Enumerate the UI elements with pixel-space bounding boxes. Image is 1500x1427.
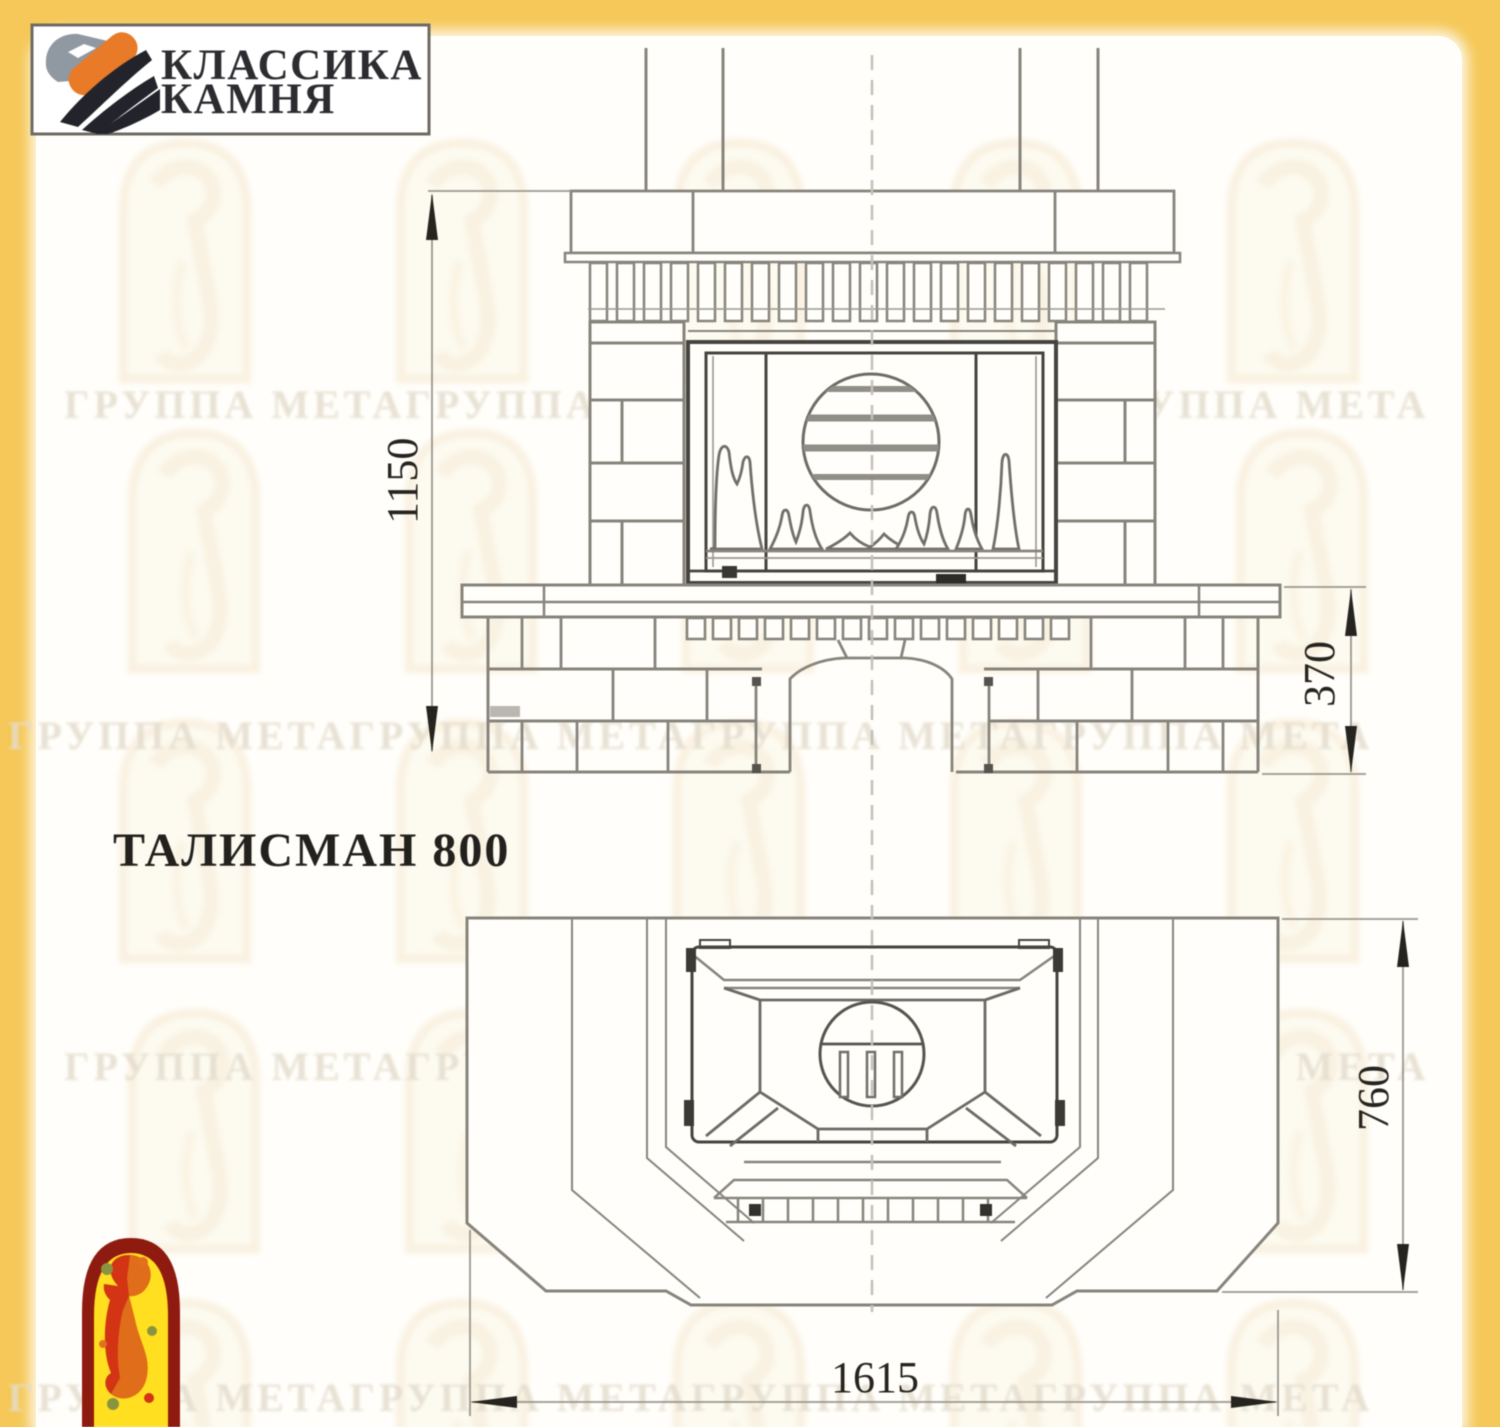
svg-text:1150: 1150	[378, 438, 427, 524]
svg-text:370: 370	[1295, 641, 1344, 707]
svg-text:1615: 1615	[831, 1353, 919, 1402]
svg-text:ТАЛИСМАН 800: ТАЛИСМАН 800	[113, 824, 510, 877]
svg-text:КАМНЯ: КАМНЯ	[161, 76, 336, 123]
svg-text:ГРУППА МЕТАГРУППА МЕТАГРУППА М: ГРУППА МЕТАГРУППА МЕТАГРУППА МЕТАГРУППА …	[8, 1375, 1373, 1420]
svg-text:760: 760	[1349, 1065, 1398, 1131]
